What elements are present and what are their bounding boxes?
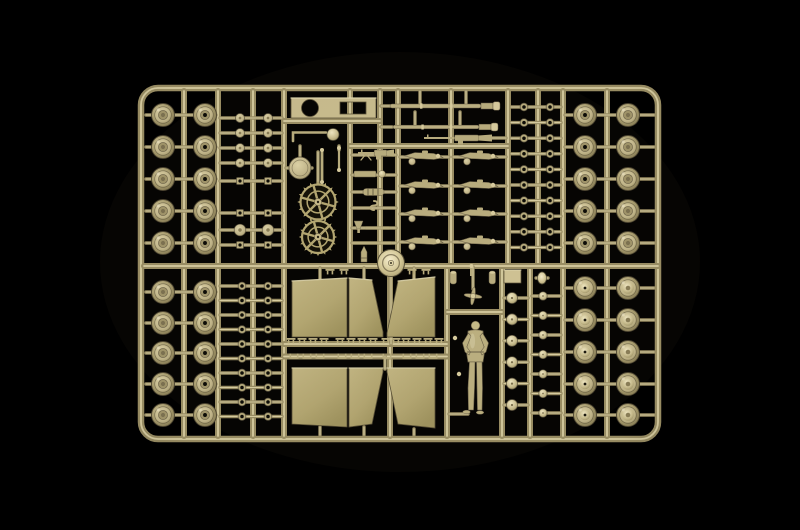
sprue-scene <box>0 0 800 530</box>
sprue-photograph <box>0 0 800 530</box>
photo-vignette <box>0 0 800 530</box>
